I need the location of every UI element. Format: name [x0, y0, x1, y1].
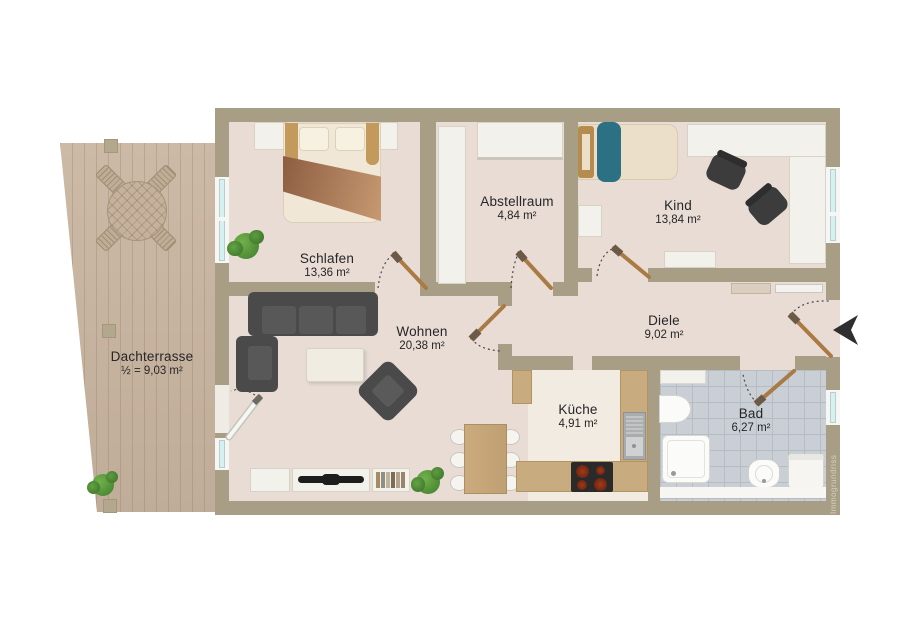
bed-pillow-right [335, 127, 365, 151]
sofa-cushion [299, 306, 333, 334]
room-area: 9,02 m² [645, 329, 684, 341]
book [386, 472, 390, 488]
entrance-opening [826, 300, 840, 357]
room-name: Küche [558, 402, 597, 417]
room-label-kind: Kind 13,84 m² [655, 198, 700, 226]
sofa-cushion [262, 306, 296, 334]
wall-wohnen-diele-stub-bottom [498, 344, 512, 370]
bath-shelf [660, 370, 706, 384]
dining-table [464, 424, 507, 494]
room-label-bad: Bad 6,27 m² [732, 406, 771, 434]
wall-bad-diele [592, 356, 740, 370]
room-name: Kind [655, 198, 700, 213]
toilet-drain [762, 479, 766, 483]
room-area: ½ = 9,03 m² [111, 365, 194, 377]
book [391, 472, 395, 488]
wall-kueche-bad [648, 370, 660, 501]
terrace-table [107, 181, 167, 241]
schlafen-plant-icon [233, 233, 259, 259]
terrace-post [103, 499, 117, 513]
wall-abstellraum-diele-2 [553, 282, 578, 296]
floor-plan-canvas: { "plan_type": "apartment-floor-plan", "… [0, 0, 900, 636]
terrace-post [104, 139, 118, 153]
washing-machine [788, 454, 824, 488]
kind-dresser [664, 251, 716, 268]
watermark-text: Immogrundriss [829, 438, 838, 514]
sink-drain [632, 444, 636, 448]
kind-wardrobe [578, 205, 602, 237]
bed-headboard-right [366, 123, 379, 165]
terrace-plant-icon [92, 474, 114, 496]
kid-bed-blanket [597, 122, 621, 182]
diele-sideboard [775, 284, 823, 293]
wall-kueche-diele [512, 356, 573, 370]
bad-window [826, 390, 840, 425]
wall-abstellraum-kind [564, 122, 578, 282]
sofa-cushion [336, 306, 366, 334]
tv-stand [322, 474, 340, 485]
room-area: 4,84 m² [480, 210, 553, 222]
room-name: Wohnen [396, 324, 447, 339]
kitchen-counter-left [512, 370, 532, 404]
room-name: Bad [732, 406, 771, 421]
room-area: 6,27 m² [732, 422, 771, 434]
bath-baseboard [660, 487, 826, 498]
desk-top-bar [687, 124, 826, 157]
diele-shelf [731, 283, 771, 294]
wohnen-window [215, 438, 229, 470]
abstellraum-shelf-top [477, 122, 563, 160]
wall-kind-diele-left [578, 268, 592, 282]
burner [576, 465, 589, 478]
washbasin [659, 395, 691, 423]
room-label-schlafen: Schlafen 13,36 m² [300, 251, 354, 279]
room-label-wohnen: Wohnen 20,38 m² [396, 324, 447, 352]
kind-window [826, 167, 840, 243]
room-name: Diele [645, 313, 684, 328]
terrace-post [102, 324, 116, 338]
room-name: Dachterrasse [111, 349, 194, 364]
wall-wohnen-diele-stub-top [498, 282, 512, 306]
book [396, 472, 400, 488]
room-name: Abstellraum [480, 194, 553, 209]
armchair-cushion [248, 346, 272, 380]
shower-drain [671, 471, 676, 476]
room-area: 13,36 m² [300, 267, 354, 279]
abstellraum-shelf-left [438, 126, 466, 284]
book [401, 472, 405, 488]
burner [596, 466, 605, 475]
wall-bad-diele-2 [795, 356, 826, 370]
book [381, 472, 385, 488]
room-label-dachterrasse: Dachterrasse ½ = 9,03 m² [111, 349, 194, 377]
tv-board-left [250, 468, 290, 492]
burner [577, 480, 587, 490]
room-area: 4,91 m² [558, 418, 597, 430]
kind-window-divider [826, 212, 840, 216]
room-label-diele: Diele 9,02 m² [645, 313, 684, 341]
kid-bed-headboard-inner [582, 134, 590, 170]
wall-schlafen-abstellraum [420, 122, 436, 296]
sink-drainer [626, 416, 643, 434]
room-area: 20,38 m² [396, 340, 447, 352]
coffee-table [306, 348, 364, 382]
burner [594, 478, 607, 491]
wohnen-plant-icon [416, 470, 440, 494]
room-area: 13,84 m² [655, 214, 700, 226]
book [376, 472, 380, 488]
room-name: Schlafen [300, 251, 354, 266]
desk-side-bar [789, 156, 826, 264]
room-label-kueche: Küche 4,91 m² [558, 402, 597, 430]
schlafen-window-divider [215, 217, 229, 221]
wall-kind-diele-right [648, 268, 826, 282]
bed-pillow-left [299, 127, 329, 151]
terrace-door-opening [215, 385, 229, 433]
room-label-abstellraum: Abstellraum 4,84 m² [480, 194, 553, 222]
